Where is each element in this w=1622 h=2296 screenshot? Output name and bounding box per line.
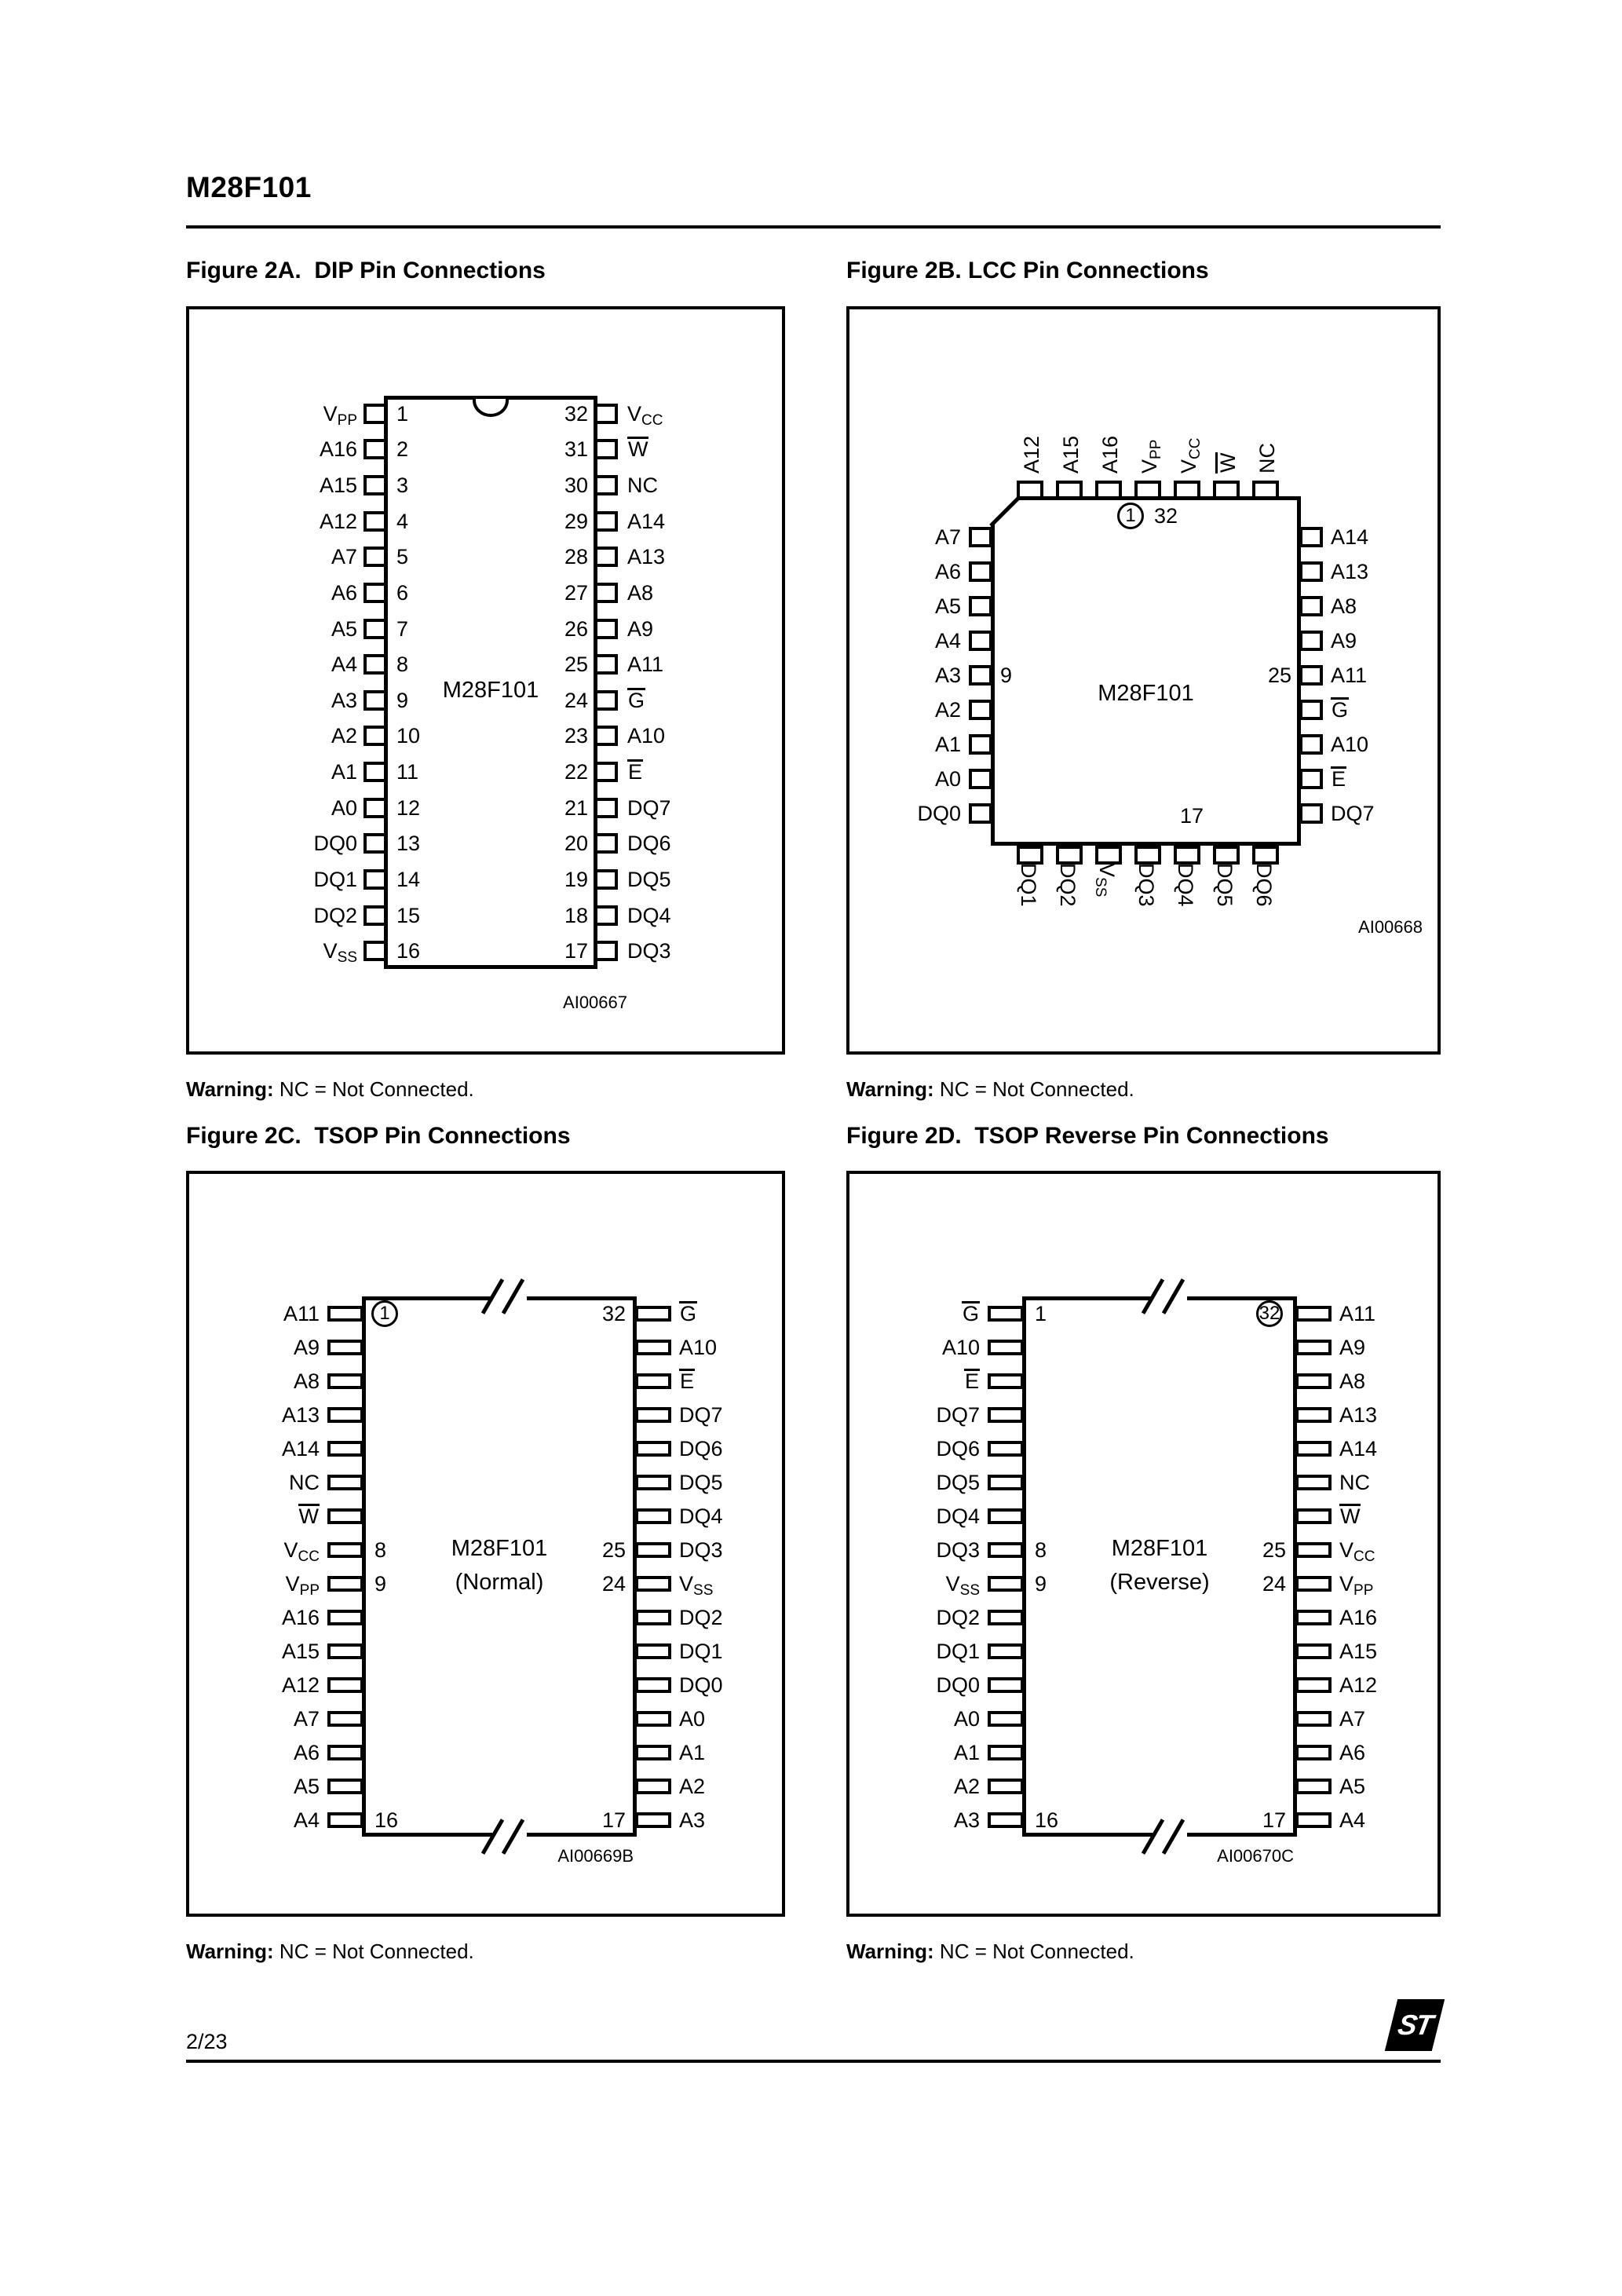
pin-stub xyxy=(363,762,387,782)
pin-label: A2 xyxy=(679,1773,781,1800)
pin-number: 9 xyxy=(374,1570,386,1597)
pin-name-text: A12 xyxy=(1339,1673,1377,1697)
warning-label: Warning: xyxy=(846,1940,934,1963)
pin-name-text: A3 xyxy=(954,1808,980,1832)
pin-label: A2 xyxy=(849,1773,980,1800)
pin-label: DQ2 xyxy=(197,902,357,929)
pin-label: A14 xyxy=(1339,1435,1441,1462)
pin-label: A1 xyxy=(197,759,357,785)
pin-stub xyxy=(363,511,387,532)
pin-stub xyxy=(988,1373,1024,1389)
pin-name-text: A14 xyxy=(627,510,665,533)
pin-stub xyxy=(1299,665,1323,686)
pin-stub xyxy=(1095,846,1122,865)
pin-label: DQ1 xyxy=(1018,863,1042,981)
pin-name-subscript: PP xyxy=(338,412,357,429)
pin-name-text: A8 xyxy=(627,581,653,605)
pin-label: A8 xyxy=(189,1368,320,1395)
page-title: M28F101 xyxy=(186,171,312,204)
pin-name-text: A16 xyxy=(282,1606,320,1629)
pin-stub xyxy=(635,1677,671,1693)
pin-name-text: A7 xyxy=(1339,1707,1365,1731)
pin-label: DQ7 xyxy=(679,1402,781,1428)
warning-2c: Warning: NC = Not Connected. xyxy=(186,1940,474,1964)
pin-number: 23 xyxy=(502,722,588,749)
pin-number: 10 xyxy=(396,722,420,749)
pin-stub xyxy=(363,905,387,926)
pin-label: A3 xyxy=(849,662,961,689)
pin-name-text: DQ1 xyxy=(936,1640,980,1663)
pin-label: A15 xyxy=(197,472,357,499)
figure-2a-box: M28F101AI00667VPP1A162A153A124A75A66A57A… xyxy=(186,306,785,1055)
pin-stub xyxy=(327,1779,363,1794)
pin-stub xyxy=(635,1711,671,1727)
pin-label: DQ4 xyxy=(1175,863,1199,981)
pin-name-text: A11 xyxy=(283,1302,320,1325)
pin-stub xyxy=(594,869,618,890)
pin-stub xyxy=(988,1576,1024,1592)
pin-number: 16 xyxy=(374,1807,398,1834)
pin-name-text: A16 xyxy=(1339,1606,1377,1629)
pin-name-text: A3 xyxy=(935,664,961,687)
pin-name-subscript: CC xyxy=(641,412,663,429)
pin-stub xyxy=(988,1745,1024,1760)
pin-label: A7 xyxy=(189,1706,320,1732)
pin-label: A14 xyxy=(189,1435,320,1462)
pin-stub xyxy=(327,1677,363,1693)
tsop-chip-body xyxy=(1022,1296,1297,1837)
pin-stub xyxy=(969,527,992,547)
pin-label: A2 xyxy=(849,696,961,723)
pin-stub xyxy=(1252,846,1279,865)
pin-label: A10 xyxy=(627,722,776,749)
pin-label: A5 xyxy=(197,616,357,642)
pin-label: A4 xyxy=(197,651,357,678)
pin-number: 8 xyxy=(396,651,408,678)
pin-label: DQ1 xyxy=(197,866,357,893)
pin-stub xyxy=(1174,846,1200,865)
pin-name-text: W xyxy=(1215,452,1240,473)
pin-name-text: A2 xyxy=(331,724,357,748)
pin-number: 3 xyxy=(396,472,408,499)
pin-name-text: V xyxy=(1095,863,1119,877)
pin-stub xyxy=(327,1475,363,1490)
pin-number: 17 xyxy=(502,938,588,964)
pin-name-text: DQ0 xyxy=(936,1673,980,1697)
pin-name-text: A6 xyxy=(331,581,357,605)
pin-name-subscript: SS xyxy=(1092,877,1109,897)
pin-name-text: V xyxy=(323,402,338,426)
pin-stub xyxy=(594,833,618,854)
pin-stub xyxy=(1295,1373,1332,1389)
pin-name-text: G xyxy=(679,1301,697,1325)
pin-name-text: DQ3 xyxy=(1134,863,1158,907)
pin-name-text: DQ5 xyxy=(936,1471,980,1494)
pin-stub xyxy=(327,1340,363,1355)
pin-name-text: A1 xyxy=(935,733,961,756)
pin-number: 1 xyxy=(1035,1300,1047,1327)
pin-label: A6 xyxy=(189,1739,320,1766)
pin-stub xyxy=(988,1542,1024,1558)
pin-stub xyxy=(1299,631,1323,651)
pin-name-text: NC xyxy=(1339,1471,1370,1494)
pin-name-text: V xyxy=(286,1572,300,1596)
pin-stub xyxy=(988,1643,1024,1659)
pin-name-text: A8 xyxy=(1339,1369,1365,1393)
pin-stub xyxy=(635,1812,671,1828)
pin-label: A10 xyxy=(679,1334,781,1361)
pin-label: DQ3 xyxy=(679,1537,781,1563)
pin-name-text: A2 xyxy=(935,698,961,722)
pin-stub xyxy=(594,404,618,424)
pin-name-text: A10 xyxy=(1331,733,1368,756)
pin-name-subscript: CC xyxy=(1353,1548,1375,1565)
pin-stub xyxy=(635,1475,671,1490)
pin-name-text: V xyxy=(679,1572,693,1596)
pin-name-text: A5 xyxy=(294,1775,320,1798)
pin-stub xyxy=(1299,803,1323,824)
pin-name-text: A12 xyxy=(320,510,357,533)
pin-name-text: A12 xyxy=(282,1673,320,1697)
pin-label: DQ5 xyxy=(1215,863,1238,981)
pin-number: 12 xyxy=(396,795,420,821)
pin-name-text: A1 xyxy=(331,760,357,784)
pin-name-subscript: PP xyxy=(1353,1582,1373,1599)
pin-name-text: A13 xyxy=(1339,1403,1377,1427)
pin-number: 8 xyxy=(374,1537,386,1563)
pin-name-text: DQ2 xyxy=(679,1606,723,1629)
pin-name-text: E xyxy=(679,1369,695,1393)
pin-name-subscript: SS xyxy=(338,949,357,966)
pin-stub xyxy=(327,1812,363,1828)
pin-stub xyxy=(988,1711,1024,1727)
pin-name-text: A8 xyxy=(294,1369,320,1393)
pin-number: 27 xyxy=(502,579,588,606)
pin-stub xyxy=(1295,1711,1332,1727)
pin-stub xyxy=(1299,769,1323,789)
pin-name-text: DQ5 xyxy=(679,1471,723,1494)
pin-number: 4 xyxy=(396,508,408,535)
pin-label: A0 xyxy=(197,795,357,821)
pin-name-text: DQ6 xyxy=(1252,863,1276,907)
pin-label: A3 xyxy=(197,687,357,714)
pin-stub xyxy=(1299,700,1323,720)
pin-stub xyxy=(363,583,387,603)
pin-stub xyxy=(969,803,992,824)
pin-label: A9 xyxy=(1331,627,1441,654)
pin-name-text: DQ1 xyxy=(313,868,357,891)
pin-label: A13 xyxy=(189,1402,320,1428)
pin-name-text: DQ7 xyxy=(627,796,671,820)
pin-name-text: A9 xyxy=(627,617,653,641)
pin-label: A5 xyxy=(849,593,961,620)
pin-name-text: A11 xyxy=(1331,664,1367,687)
pin-label: DQ0 xyxy=(849,1672,980,1698)
pin-stub xyxy=(363,619,387,639)
warning-label: Warning: xyxy=(186,1940,274,1963)
pin-stub xyxy=(1299,527,1323,547)
pin-number: 32 xyxy=(539,1300,626,1327)
pin-label: DQ4 xyxy=(849,1503,980,1530)
pin-number: 24 xyxy=(502,687,588,714)
pin-label: A14 xyxy=(1331,524,1441,550)
pin-number: 26 xyxy=(502,616,588,642)
pin-name-text: V xyxy=(946,1572,960,1596)
pin-stub xyxy=(988,1441,1024,1457)
pin-name-text: V xyxy=(284,1538,298,1562)
warning-text: NC = Not Connected. xyxy=(274,1940,474,1963)
figure-2a-title: Figure 2A. DIP Pin Connections xyxy=(186,258,546,284)
pin-name-text: NC xyxy=(1255,443,1279,473)
pin-name-text: A1 xyxy=(679,1741,705,1764)
pin-label: E xyxy=(679,1368,781,1395)
pin-label: A15 xyxy=(1339,1638,1441,1665)
pin-stub xyxy=(1295,1812,1332,1828)
datasheet-page: M28F101 Figure 2A. DIP Pin Connections F… xyxy=(0,0,1622,2296)
pin-name-text: A7 xyxy=(294,1707,320,1731)
tsop-chip-body xyxy=(362,1296,637,1837)
pin-name-text: A14 xyxy=(282,1437,320,1461)
pin-name-text: A3 xyxy=(331,689,357,712)
pin-name-text: DQ6 xyxy=(936,1437,980,1461)
pin-label: A4 xyxy=(849,627,961,654)
pin-label: A11 xyxy=(627,651,776,678)
warning-text: NC = Not Connected. xyxy=(934,1940,1134,1963)
pin-stub xyxy=(635,1576,671,1592)
pin-stub xyxy=(635,1306,671,1322)
pin-label: A1 xyxy=(849,731,961,758)
pin-number: 21 xyxy=(502,795,588,821)
pin-stub xyxy=(594,690,618,711)
pin-stub xyxy=(1213,846,1240,865)
pin-number: 25 xyxy=(502,651,588,678)
pin-number: 32 xyxy=(1256,1300,1283,1327)
pin-name-text: A9 xyxy=(294,1336,320,1359)
pin-name-text: A10 xyxy=(679,1336,717,1359)
pin-label: A4 xyxy=(1339,1807,1441,1834)
pin-stub xyxy=(363,439,387,459)
pin-label: A14 xyxy=(627,508,776,535)
pin-number: 5 xyxy=(396,543,408,570)
pin-stub xyxy=(635,1340,671,1355)
pin-label: A3 xyxy=(679,1807,781,1834)
pin-label: VCC xyxy=(189,1537,320,1567)
pin-stub xyxy=(594,726,618,746)
pin-name-text: DQ1 xyxy=(1017,863,1040,907)
pin-name-text: A10 xyxy=(942,1336,980,1359)
pin-name-subscript: CC xyxy=(298,1548,320,1565)
pin-number: 29 xyxy=(502,508,588,535)
pin-label: A9 xyxy=(627,616,776,642)
pin-label: VSS xyxy=(679,1570,781,1600)
pin-name-text: A0 xyxy=(679,1707,705,1731)
pin-name-text: G xyxy=(962,1301,980,1325)
pin-stub xyxy=(1299,561,1323,582)
pin-name-text: A4 xyxy=(1339,1808,1365,1832)
pin-name-subscript: CC xyxy=(1187,438,1204,459)
pin-number: 20 xyxy=(502,830,588,857)
pin-label: A6 xyxy=(849,558,961,585)
pin-label: A16 xyxy=(1339,1604,1441,1631)
pin-stub xyxy=(1095,481,1122,499)
footer-rule xyxy=(186,2060,1441,2063)
pin-stub xyxy=(1017,481,1043,499)
pin-label: A8 xyxy=(627,579,776,606)
figure-ref: AI00668 xyxy=(1266,917,1423,938)
pin-label: A11 xyxy=(1339,1300,1441,1327)
lcc-pin1-marker: 1 xyxy=(1117,503,1144,529)
pin-name-text: A15 xyxy=(1339,1640,1377,1663)
pin-label: DQ0 xyxy=(197,830,357,857)
pin-name-text: E xyxy=(964,1369,980,1393)
pin-name-text: NC xyxy=(627,473,658,497)
warning-label: Warning: xyxy=(846,1077,934,1101)
pin-name-text: A1 xyxy=(954,1741,980,1764)
pin-name-text: A11 xyxy=(1339,1302,1375,1325)
pin-name-text: V xyxy=(1339,1538,1353,1562)
pin-name-subscript: SS xyxy=(693,1582,713,1599)
pin-name-text: A5 xyxy=(331,617,357,641)
pin-stub xyxy=(1295,1508,1332,1524)
pin-label: VCC xyxy=(1175,356,1199,473)
pin-stub xyxy=(1017,846,1043,865)
pin-label: NC xyxy=(1339,1469,1441,1496)
pin-stub xyxy=(635,1745,671,1760)
pin-name-text: NC xyxy=(289,1471,320,1494)
pin-name-text: A16 xyxy=(320,437,357,461)
pin-name-text: DQ0 xyxy=(917,802,961,825)
pin-name-text: W xyxy=(298,1504,320,1528)
pin-label: A6 xyxy=(197,579,357,606)
pin-label: DQ2 xyxy=(849,1604,980,1631)
pin-name-text: DQ3 xyxy=(679,1538,723,1562)
pin-stub xyxy=(988,1812,1024,1828)
pin-stub xyxy=(327,1508,363,1524)
lcc-pin9-number: 9 xyxy=(1000,662,1012,689)
pin-label: A9 xyxy=(189,1334,320,1361)
pin-stub xyxy=(1295,1441,1332,1457)
pin-label: A12 xyxy=(197,508,357,535)
pin-name-text: W xyxy=(627,437,648,461)
pin-label: VCC xyxy=(1339,1537,1441,1567)
pin-stub xyxy=(363,869,387,890)
pin-label: A12 xyxy=(1339,1672,1441,1698)
pin-number: 2 xyxy=(396,436,408,462)
pin-label: VSS xyxy=(849,1570,980,1600)
lcc-pin17-number: 17 xyxy=(1160,803,1223,829)
figure-2d-box: M28F101(Reverse)AI00670CG1A10EDQ7DQ6DQ5D… xyxy=(846,1171,1441,1917)
pin-name-text: DQ0 xyxy=(679,1673,723,1697)
pin-stub xyxy=(594,619,618,639)
pin-label: A13 xyxy=(1331,558,1441,585)
pin-stub xyxy=(594,547,618,567)
pin-number: 30 xyxy=(502,472,588,499)
pin-label: A3 xyxy=(849,1807,980,1834)
pin-stub xyxy=(363,941,387,961)
pin-stub xyxy=(635,1407,671,1423)
pin-stub xyxy=(635,1779,671,1794)
pin-label: DQ7 xyxy=(1331,800,1441,827)
pin-name-text: DQ1 xyxy=(679,1640,723,1663)
pin-name-text: DQ5 xyxy=(1213,863,1237,907)
pin-name-text: DQ2 xyxy=(1056,863,1080,907)
pin-stub xyxy=(363,726,387,746)
pin-name-text: DQ4 xyxy=(936,1504,980,1528)
warning-2a: Warning: NC = Not Connected. xyxy=(186,1077,474,1102)
pin-label: W xyxy=(189,1503,320,1530)
figure-ref: AI00670C xyxy=(1137,1846,1294,1866)
pin-stub xyxy=(1134,481,1161,499)
pin-label: A7 xyxy=(1339,1706,1441,1732)
pin-number: 22 xyxy=(502,759,588,785)
pin-stub xyxy=(988,1407,1024,1423)
pin-number: 24 xyxy=(539,1570,626,1597)
pin-number: 32 xyxy=(502,400,588,427)
pin-stub xyxy=(327,1610,363,1625)
pin-number: 25 xyxy=(539,1537,626,1563)
pin-number: 16 xyxy=(396,938,420,964)
pin-label: A6 xyxy=(1339,1739,1441,1766)
pin-name-text: A9 xyxy=(1331,629,1357,653)
pin-stub xyxy=(327,1373,363,1389)
pin-label: A16 xyxy=(1097,356,1120,473)
pin-name-text: DQ4 xyxy=(1174,863,1197,907)
pin-stub xyxy=(1174,481,1200,499)
pin-stub xyxy=(988,1779,1024,1794)
pin-name-text: A5 xyxy=(1339,1775,1365,1798)
pin-stub xyxy=(594,762,618,782)
pin-label: A5 xyxy=(1339,1773,1441,1800)
pin-label: DQ5 xyxy=(849,1469,980,1496)
pin-stub xyxy=(969,769,992,789)
pin-name-text: A10 xyxy=(627,724,665,748)
pin-name-text: A16 xyxy=(1098,436,1122,473)
pin-name-text: A3 xyxy=(679,1808,705,1832)
pin-stub xyxy=(1295,1745,1332,1760)
pin-stub xyxy=(1295,1475,1332,1490)
pin-label: E xyxy=(849,1368,980,1395)
pin-label: DQ3 xyxy=(849,1537,980,1563)
pin-label: A7 xyxy=(197,543,357,570)
pin-label: A0 xyxy=(679,1706,781,1732)
pin-label: A9 xyxy=(1339,1334,1441,1361)
pin-label: A1 xyxy=(679,1739,781,1766)
pin-name-text: A6 xyxy=(1339,1741,1365,1764)
pin-label: A15 xyxy=(189,1638,320,1665)
pin-label: NC xyxy=(1254,356,1277,473)
pin-stub xyxy=(988,1475,1024,1490)
pin-name-text: A13 xyxy=(627,545,665,569)
pin-name-text: E xyxy=(1331,766,1346,791)
pin-stub xyxy=(594,439,618,459)
warning-2d: Warning: NC = Not Connected. xyxy=(846,1940,1134,1964)
pin-name-text: A9 xyxy=(1339,1336,1365,1359)
pin-stub xyxy=(363,690,387,711)
pin-stub xyxy=(327,1441,363,1457)
pin-name-text: A13 xyxy=(282,1403,320,1427)
pin-number: 17 xyxy=(539,1807,626,1834)
pin-stub xyxy=(1295,1779,1332,1794)
pin-name-text: A2 xyxy=(954,1775,980,1798)
pin-name-text: DQ6 xyxy=(679,1437,723,1461)
pin-name-text: A12 xyxy=(1020,436,1043,473)
pin-name-text: E xyxy=(627,759,643,784)
pin-label: A0 xyxy=(849,1706,980,1732)
pin-stub xyxy=(635,1610,671,1625)
lcc-pin32-number: 32 xyxy=(1154,503,1178,529)
pin-stub xyxy=(1299,734,1323,755)
pin-stub xyxy=(327,1745,363,1760)
